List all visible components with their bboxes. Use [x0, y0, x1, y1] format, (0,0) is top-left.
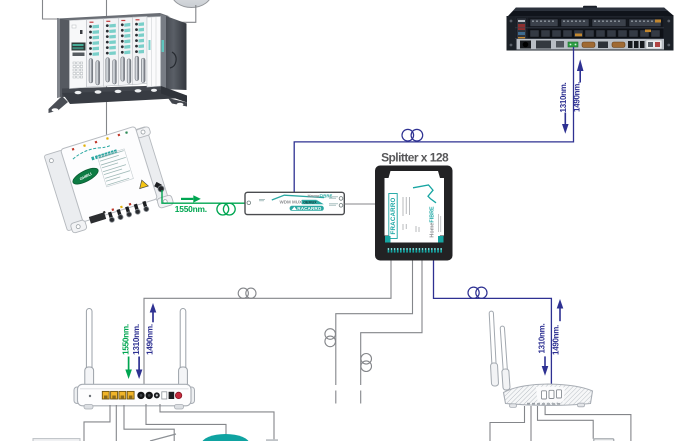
svg-text:1490nm.: 1490nm. [572, 82, 581, 112]
svg-text:HomeFIBRE: HomeFIBRE [308, 193, 333, 198]
svg-text:OEMUX: OEMUX [303, 200, 317, 204]
svg-text:1310nm.: 1310nm. [538, 324, 547, 354]
svg-text:1310nm.: 1310nm. [559, 82, 568, 112]
svg-text:1550nm.: 1550nm. [175, 204, 207, 214]
svg-text:1490nm.: 1490nm. [551, 325, 560, 355]
svg-text:1490nm.: 1490nm. [145, 324, 154, 355]
svg-text:1550nm.: 1550nm. [121, 324, 130, 355]
svg-text:WDM MUX: WDM MUX [280, 200, 303, 205]
svg-text:Splitter x 128: Splitter x 128 [381, 151, 449, 165]
svg-text:1310nm.: 1310nm. [132, 324, 141, 355]
svg-text:RACARRO: RACARRO [297, 206, 322, 211]
svg-text:FRACARRO: FRACARRO [390, 197, 397, 234]
svg-text:HomeFIBRE: HomeFIBRE [430, 206, 436, 238]
